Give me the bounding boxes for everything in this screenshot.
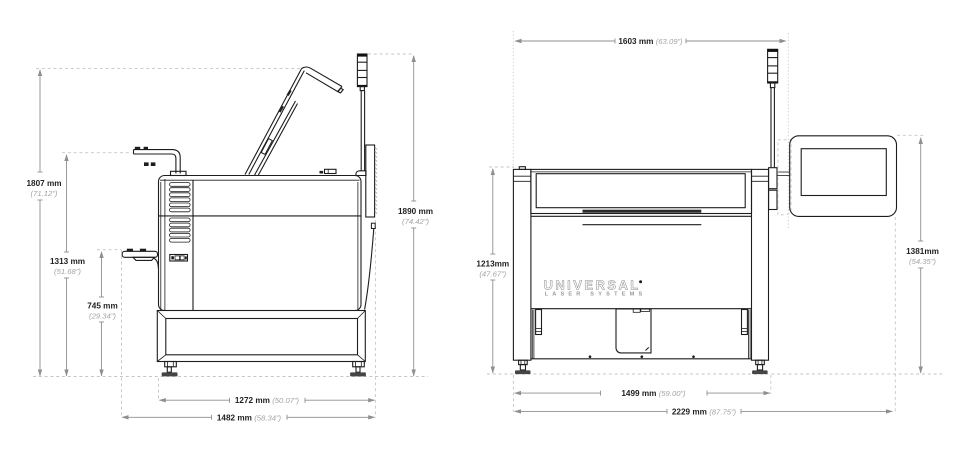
svg-text:1482 mm (58.34”): 1482 mm (58.34”) [217, 413, 282, 422]
svg-text:(47.67”): (47.67”) [479, 270, 506, 279]
svg-text:2229 mm (87.75”): 2229 mm (87.75”) [672, 407, 737, 416]
svg-text:UNIVERSAL: UNIVERSAL [544, 278, 641, 293]
svg-text:(54.35”): (54.35”) [909, 257, 936, 266]
svg-text:1213mm: 1213mm [476, 260, 509, 269]
svg-text:(51.68”): (51.68”) [54, 267, 81, 276]
svg-text:(71.12”): (71.12”) [31, 189, 58, 198]
svg-text:1499 mm (59.00”): 1499 mm (59.00”) [621, 389, 686, 398]
svg-text:1272 mm (50.07”): 1272 mm (50.07”) [235, 396, 300, 405]
svg-text:1313 mm: 1313 mm [50, 257, 85, 266]
svg-text:LASER SYSTEMS: LASER SYSTEMS [545, 291, 647, 297]
svg-text:(29.34”): (29.34”) [89, 312, 116, 321]
svg-text:745 mm: 745 mm [87, 302, 118, 311]
svg-text:1381mm: 1381mm [906, 247, 939, 256]
svg-text:1890 mm: 1890 mm [398, 207, 433, 216]
svg-text:1807 mm: 1807 mm [26, 179, 61, 188]
svg-text:(74.42”): (74.42”) [402, 217, 429, 226]
svg-text:1603 mm (63.09”): 1603 mm (63.09”) [618, 37, 683, 46]
